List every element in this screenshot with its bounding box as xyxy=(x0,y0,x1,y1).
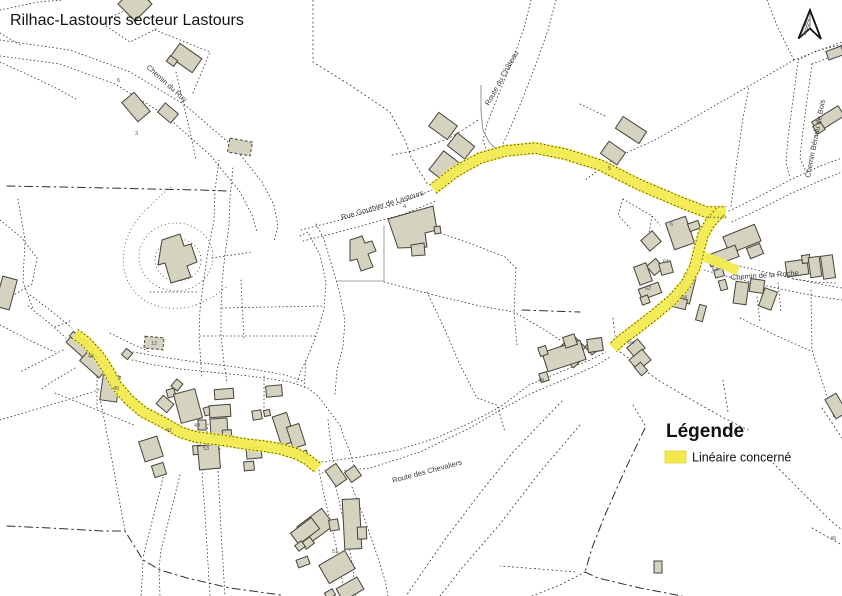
svg-text:5a: 5a xyxy=(628,340,635,346)
svg-text:49: 49 xyxy=(194,423,200,429)
svg-text:61: 61 xyxy=(663,259,669,265)
svg-text:3: 3 xyxy=(135,131,138,137)
svg-text:6: 6 xyxy=(117,78,120,84)
svg-text:Rilhac-Lastours secteur Lastou: Rilhac-Lastours secteur Lastours xyxy=(10,12,244,29)
svg-text:51: 51 xyxy=(332,549,338,555)
svg-text:63: 63 xyxy=(712,267,718,273)
svg-text:6: 6 xyxy=(670,222,673,228)
svg-text:Légende: Légende xyxy=(666,421,744,442)
svg-text:64: 64 xyxy=(681,295,687,301)
svg-text:62: 62 xyxy=(645,286,651,292)
svg-text:Linéaire concerné: Linéaire concerné xyxy=(692,451,791,465)
svg-text:49: 49 xyxy=(830,536,836,542)
svg-text:49: 49 xyxy=(538,378,544,384)
svg-text:12: 12 xyxy=(151,341,157,347)
svg-text:47: 47 xyxy=(166,428,172,434)
svg-text:4: 4 xyxy=(403,204,406,210)
svg-text:45: 45 xyxy=(113,386,119,392)
svg-text:5: 5 xyxy=(608,166,611,172)
svg-text:53: 53 xyxy=(203,446,209,452)
svg-text:46: 46 xyxy=(88,354,94,360)
